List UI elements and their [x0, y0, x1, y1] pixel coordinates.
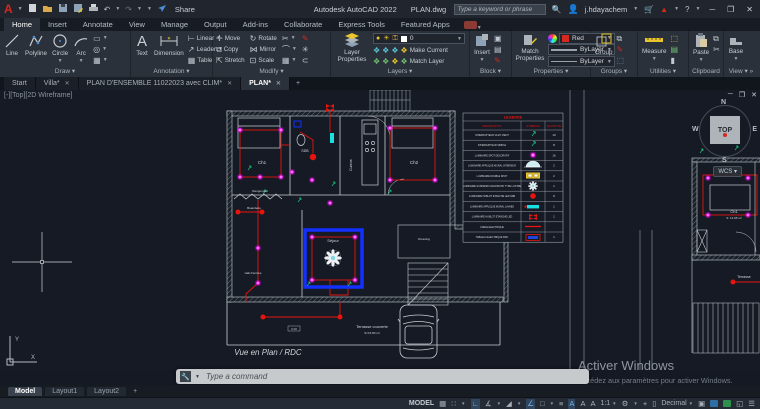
panel-clipboard: Paste▼ ⧉ ✂ Clipboard [689, 31, 724, 77]
arc-button[interactable]: Arc▼ [72, 33, 90, 64]
customize-plus-icon[interactable]: + [643, 399, 647, 409]
stairs [408, 263, 448, 305]
alert-caret-icon[interactable]: ▼ [674, 6, 679, 12]
svg-text:Ch1: Ch1 [730, 209, 738, 214]
plot-icon[interactable] [88, 3, 99, 15]
svg-text:CABLE ELECTRIQUE: CABLE ELECTRIQUE [480, 226, 504, 229]
panel-label-clipboard[interactable]: Clipboard [689, 67, 723, 77]
app-menu-caret-icon[interactable]: ▼ [18, 6, 23, 12]
polar-caret-icon[interactable]: ▼ [497, 401, 501, 406]
viewcube-top-face[interactable]: TOP [710, 116, 740, 144]
svg-text:SDB: SDB [301, 149, 309, 153]
lineweight-icon[interactable]: ≡ [559, 399, 563, 409]
close-button[interactable]: ✕ [743, 5, 756, 14]
isodraft-icon[interactable]: ◢ [506, 399, 512, 409]
close-tab-icon[interactable]: ✕ [65, 80, 70, 87]
rotate-button[interactable]: ↻Rotate [250, 33, 277, 43]
annotation-visibility-icon[interactable]: A [580, 399, 585, 409]
line-button[interactable]: Line [3, 33, 21, 57]
match-layer-label[interactable]: Match Layer [410, 58, 445, 65]
svg-text:SYMBOLE: SYMBOLE [526, 124, 540, 128]
trusted-dwg-icon[interactable] [723, 400, 731, 407]
base-button[interactable]: Base▼ [727, 33, 745, 62]
block-attributes-icon[interactable]: ✎ [494, 55, 502, 65]
search-input[interactable] [454, 4, 546, 15]
svg-text:LUMINAIRE HUBLOT ETANCHE LED: LUMINAIRE HUBLOT ETANCHE LED [472, 216, 513, 219]
offset-icon[interactable]: ⊂ [302, 55, 309, 65]
workspace-gear-icon[interactable]: ⚙ [622, 399, 629, 409]
customization-menu-icon[interactable]: ☰ [748, 399, 755, 409]
doc-title: PLAN.dwg [411, 5, 446, 14]
svg-text:S=15.80 m²: S=15.80 m² [364, 331, 380, 335]
ucs-icon: Y X [7, 336, 37, 365]
user-avatar-icon[interactable]: 👤 [568, 4, 579, 15]
svg-text:A: A [137, 33, 147, 49]
svg-text:10: 10 [552, 133, 556, 137]
isodraft-caret-icon[interactable]: ▼ [517, 401, 521, 406]
snap-icon[interactable]: ∷ [451, 399, 456, 409]
osnap-icon[interactable]: □ [540, 399, 545, 409]
help-caret-icon[interactable]: ▼ [696, 6, 701, 12]
crosshair-cursor [12, 232, 72, 292]
explode-icon[interactable]: ✳ [302, 44, 309, 54]
close-tab-icon[interactable]: ✕ [276, 80, 281, 87]
svg-text:INTERRUPTEUR SIMPLE: INTERRUPTEUR SIMPLE [478, 144, 507, 147]
username[interactable]: j.hdayachem [585, 5, 628, 14]
file-tab-plan-ensemble[interactable]: PLAN D'ENSEMBLE 11022023 avec CLIM*✕ [79, 77, 241, 90]
svg-text:LUMINAIRE HUBLOT ETANCHE LED S: LUMINAIRE HUBLOT ETANCHE LED SDB [469, 195, 516, 198]
doc-close-button[interactable]: ✕ [751, 91, 757, 99]
group-select-icon[interactable]: ⬚ [617, 55, 625, 65]
autodesk-alert-icon[interactable]: ▲ [660, 5, 668, 14]
svg-text:✶: ✶ [167, 36, 171, 42]
svg-text:Ch2: Ch2 [410, 160, 419, 165]
measure-button[interactable]: Measure▼ [641, 33, 668, 62]
panel-utilities: Measure▼ ⬚ ▤ ▮ Utilities ▾ [638, 31, 689, 77]
tab-add-ins[interactable]: Add-ins [235, 18, 276, 31]
panel-draw: Line Polyline Circle▼ Arc▼ ▭▼ ◎▼ ▦▼ Draw… [0, 31, 131, 77]
wcs-dropdown[interactable]: WCS ▾ [713, 166, 742, 177]
panel-view: Base▼ View ▾ » [724, 31, 758, 77]
id-point-icon[interactable]: ▮ [671, 55, 679, 65]
svg-text:LUMINAIRE SUSPENDU DECORATIF T: LUMINAIRE SUSPENDU DECORATIF TYPE LUSTRE [463, 185, 522, 188]
help-icon[interactable]: ? [685, 5, 689, 14]
status-bar: MODEL ▦ ∷▼ ∟ ∡▼ ◢▼ ∠ □▼ ≡ A A A 1:1 ▼ ⚙▼… [0, 397, 760, 409]
isolate-objects-icon[interactable]: ▯ [652, 399, 656, 409]
panel-layers: Layer Properties ● ☀ ⚿ 0▼ ❖❖❖❖Make Curre… [331, 31, 470, 77]
quick-calc-icon[interactable]: ▤ [671, 44, 679, 54]
panel-modify: ✛Move ⧉Copy ⇱Stretch ↻Rotate ⋈Mirror ⊡Sc… [213, 31, 331, 77]
match-properties-button[interactable]: Match Properties [515, 33, 545, 62]
panel-annotation: AText ✶Dimension ⊢Linear▼ ↗Leader▼ ▦Tabl… [131, 31, 213, 77]
layer-properties-button[interactable]: Layer Properties [334, 33, 370, 63]
ribbon: Line Polyline Circle▼ Arc▼ ▭▼ ◎▼ ▦▼ Draw… [0, 31, 760, 77]
boundary-lines [570, 90, 652, 370]
svg-text:S: 13.95 m²: S: 13.95 m² [726, 216, 742, 220]
osnap-caret-icon[interactable]: ▼ [550, 401, 554, 406]
panel-label-annotation[interactable]: Annotation ▾ [131, 67, 212, 77]
panel-label-draw[interactable]: Draw ▾ [0, 67, 130, 77]
undo-icon[interactable]: ↶ [104, 5, 111, 14]
svg-text:LUMINAIRE SPOT DECORATIF: LUMINAIRE SPOT DECORATIF [475, 154, 510, 157]
doc-minimize-button[interactable]: ─ [728, 91, 733, 99]
tab-manage[interactable]: Manage [153, 18, 196, 31]
redo-icon[interactable]: ↷ [125, 5, 132, 14]
minimize-button[interactable]: ─ [706, 5, 718, 14]
make-current-label[interactable]: Make Current [410, 47, 448, 54]
tab-output[interactable]: Output [196, 18, 235, 31]
panel-groups: Group ⧉ ✎ ⬚ Groups ▾ [591, 31, 638, 77]
hatch-tool-icon[interactable]: ▦▼ [93, 55, 108, 65]
annotation-autoscale-icon[interactable]: A [590, 399, 595, 409]
floor-plan-drawing: Ch1 SDB Cuisine Ch2 Rangement Buanderie … [0, 90, 760, 370]
text-button[interactable]: AText [134, 33, 150, 57]
panel-label-utilities[interactable]: Utilities ▾ [638, 67, 688, 77]
tab-annotate[interactable]: Annotate [75, 18, 121, 31]
layout2-tab[interactable]: Layout2 [87, 387, 126, 396]
graphics-performance-icon[interactable]: ▣ [698, 399, 705, 409]
autocad-window: A▼ ↶▼ ↷▼ ▼ Share Autodesk AutoCAD 2022PL… [0, 0, 760, 409]
viewport-controls-label[interactable]: [-][Top][2D Wireframe] [4, 92, 72, 99]
svg-text:TABLEAU ELECTRIQUE RDC: TABLEAU ELECTRIQUE RDC [476, 236, 509, 239]
mirror-button[interactable]: ⋈Mirror [250, 44, 277, 54]
svg-text:Séjour: Séjour [327, 238, 339, 243]
panel-label-layers[interactable]: Layers ▾ [331, 67, 469, 77]
copy-button[interactable]: ⧉Copy [216, 44, 245, 54]
tab-express-tools[interactable]: Express Tools [330, 18, 393, 31]
share-icon[interactable] [157, 4, 167, 15]
create-block-icon[interactable]: ▣ [494, 33, 502, 43]
legend-hublot-icon [530, 193, 536, 199]
car [398, 305, 439, 358]
open-folder-icon[interactable] [42, 3, 53, 15]
windows-activation-watermark: Activer Windows Accédez aux paramètres p… [578, 358, 758, 385]
svg-text:X: X [31, 355, 35, 361]
scale-button[interactable]: ⊡Scale [250, 55, 277, 65]
toolbar-customize-caret-icon[interactable]: ▼ [147, 6, 152, 12]
tab-featured-apps[interactable]: Featured Apps [393, 18, 458, 31]
drawing-canvas[interactable]: Ch1 SDB Cuisine Ch2 Rangement Buanderie … [0, 90, 760, 370]
panel-properties: Match Properties Red▼ ByLayer▼ ByLayer▼ … [512, 31, 591, 77]
layout1-tab[interactable]: Layout1 [45, 387, 84, 396]
legend-table: LEGENDE DESIGNATION SYMBOLE QUANTITE INT… [463, 113, 563, 242]
tab-collaborate[interactable]: Collaborate [276, 18, 330, 31]
save-as-icon[interactable] [73, 3, 83, 15]
svg-text:Rangement: Rangement [252, 189, 268, 193]
doc-restore-button[interactable]: ❐ [739, 91, 745, 99]
group-button[interactable]: Group [594, 33, 614, 56]
clean-screen-icon[interactable]: ◱ [736, 399, 743, 409]
svg-text:LUMINAIRE APPLIQUE MURAL INTER: LUMINAIRE APPLIQUE MURAL INTERIEUR [468, 165, 516, 168]
svg-text:Hall d'entrée: Hall d'entrée [245, 271, 262, 275]
new-file-icon[interactable] [28, 3, 37, 15]
layer-select[interactable]: ● ☀ ⚿ 0▼ [373, 33, 465, 44]
restore-button[interactable]: ❐ [724, 5, 737, 14]
command-input[interactable] [204, 371, 585, 382]
move-button[interactable]: ✛Move [216, 33, 245, 43]
ortho-icon[interactable]: ∟ [471, 399, 480, 409]
svg-text:LUMINAIRE DOUBLE SPOT: LUMINAIRE DOUBLE SPOT [477, 175, 508, 178]
cut-clip-icon[interactable]: ✂ [713, 44, 720, 54]
dynamic-input-icon[interactable]: A [568, 399, 575, 409]
viewcube-south[interactable]: S [722, 157, 727, 164]
svg-text:16: 16 [552, 153, 556, 157]
file-tab-villa[interactable]: Villa*✕ [36, 77, 79, 90]
tab-home[interactable]: Home [4, 18, 40, 31]
legend-double-spot-icon [526, 173, 540, 179]
panel-label-modify[interactable]: Modify ▾ [213, 67, 330, 77]
toilet [297, 135, 305, 146]
color-wheel-icon [548, 34, 557, 43]
quick-access-toolbar: A▼ ↶▼ ↷▼ ▼ Share [4, 3, 195, 15]
viewcube-west[interactable]: W [692, 126, 699, 133]
share-label[interactable]: Share [175, 5, 195, 14]
autotrack-icon[interactable]: ∠ [526, 399, 535, 409]
svg-text:QUANTITE: QUANTITE [547, 124, 561, 128]
hardware-acceleration-icon[interactable] [710, 400, 718, 407]
panel-label-groups[interactable]: Groups ▾ [591, 67, 637, 77]
panel-label-view[interactable]: View ▾ » [724, 67, 758, 77]
group-edit-icon[interactable]: ✎ [617, 44, 625, 54]
annotation-scale-select[interactable]: 1:1 ▼ [600, 400, 616, 407]
lavabo-applique [330, 133, 334, 143]
tableau-electrique [294, 121, 301, 127]
file-tab-plan[interactable]: PLAN*✕ [241, 77, 290, 90]
file-tab-bar: Start Villa*✕ PLAN D'ENSEMBLE 11022023 a… [0, 77, 760, 90]
viewcube-pin-icon [723, 133, 727, 137]
dimension-button[interactable]: ✶Dimension [153, 33, 185, 57]
edit-block-icon[interactable]: ▤ [494, 44, 502, 54]
layer-on-bulb-icon: ● [376, 35, 380, 43]
panel-label-properties[interactable]: Properties ▾ [512, 67, 590, 77]
viewcube-east[interactable]: E [752, 126, 757, 133]
panel-block: Insert▼ ▣ ▤ ✎ Block ▾ [470, 31, 512, 77]
autocad-logo-icon[interactable]: A [4, 3, 13, 15]
layer-make-current-icon[interactable]: ❖ [373, 46, 380, 55]
svg-text:Terrasse couverte: Terrasse couverte [356, 324, 389, 329]
title-bar: A▼ ↶▼ ↷▼ ▼ Share Autodesk AutoCAD 2022PL… [0, 0, 760, 18]
sdb-hublot [310, 154, 316, 160]
svg-text:Y: Y [15, 337, 19, 343]
app-title: Autodesk AutoCAD 2022 [314, 5, 397, 14]
svg-text:LEGENDE: LEGENDE [504, 116, 523, 120]
viewcube[interactable]: N S W E TOP [695, 101, 755, 161]
stretch-button[interactable]: ⇱Stretch [216, 55, 245, 65]
svg-text:INTERRUPTEUR VA ET VIENT: INTERRUPTEUR VA ET VIENT [475, 134, 509, 137]
command-line-bar: 🔧 ▼ [176, 369, 589, 384]
rectangle-tool-icon[interactable]: ▭▼ [93, 33, 108, 43]
redo-caret-icon[interactable]: ▼ [137, 6, 142, 12]
lustre-fan [321, 246, 346, 271]
command-recent-caret-icon[interactable]: ▼ [195, 374, 200, 380]
workspace-caret-icon[interactable]: ▼ [633, 401, 637, 406]
model-space-button[interactable]: MODEL [409, 400, 434, 407]
svg-text:Vue en Plan / RDC: Vue en Plan / RDC [234, 348, 302, 357]
copy-clip-icon[interactable]: ⧉ [713, 33, 720, 43]
model-tab[interactable]: Model [8, 387, 42, 396]
layer-lock-icon: ⚿ [393, 35, 398, 43]
save-icon[interactable] [58, 3, 68, 15]
undo-caret-icon[interactable]: ▼ [115, 6, 120, 12]
tab-insert[interactable]: Insert [40, 18, 75, 31]
ribbon-extra-button[interactable] [464, 21, 477, 29]
svg-text:DESIGNATION: DESIGNATION [482, 124, 501, 128]
layer-match-icon[interactable]: ❖ [373, 57, 380, 66]
polar-tracking-icon[interactable]: ∡ [485, 399, 492, 409]
grid-icon[interactable]: ▦ [439, 399, 446, 409]
user-caret-icon[interactable]: ▼ [633, 6, 638, 12]
viewcube-north[interactable]: N [721, 99, 726, 106]
close-tab-icon[interactable]: ✕ [227, 80, 232, 87]
layer-color-swatch [401, 36, 407, 42]
layer-freeze-sun-icon: ☀ [383, 35, 389, 43]
tab-view[interactable]: View [121, 18, 153, 31]
app-store-icon[interactable]: 🛒 [644, 5, 654, 14]
new-tab-button[interactable]: + [290, 77, 306, 90]
legend-spot-icon [530, 152, 537, 159]
pergola [370, 90, 410, 111]
snap-caret-icon[interactable]: ▼ [461, 401, 465, 406]
svg-text:Dressing: Dressing [418, 237, 430, 241]
ellipse-tool-icon[interactable]: ◎▼ [93, 44, 108, 54]
panel-label-block[interactable]: Block ▾ [470, 67, 511, 77]
red-color-swatch [562, 35, 569, 42]
paste-button[interactable]: Paste▼ [692, 33, 710, 63]
ribbon-tab-row: Home Insert Annotate View Manage Output … [0, 18, 760, 31]
insert-block-button[interactable]: Insert▼ [473, 33, 491, 63]
circle-button[interactable]: Circle▼ [51, 33, 69, 64]
trim-icon[interactable]: ✂▼ [282, 33, 297, 43]
search-icon[interactable]: 🔍 [552, 5, 562, 14]
svg-text:Buanderie: Buanderie [247, 206, 261, 210]
quick-select-icon[interactable]: ⬚ [671, 33, 679, 43]
new-layout-button[interactable]: + [129, 388, 141, 395]
svg-text:Ch1: Ch1 [258, 160, 267, 165]
svg-text:Cuisine: Cuisine [349, 159, 353, 171]
array-icon[interactable]: ▦▼ [282, 55, 297, 65]
file-tab-start[interactable]: Start [4, 77, 36, 90]
ungroup-icon[interactable]: ⧉ [617, 33, 625, 43]
svg-text:Terrasse: Terrasse [737, 275, 750, 279]
right-plan [692, 158, 760, 353]
dim-text: 0.00 [291, 327, 297, 331]
layout-tab-bar: Model Layout1 Layout2 + [0, 385, 760, 397]
svg-text:LUMINAIRE APPLIQUE MURAL LAVAB: LUMINAIRE APPLIQUE MURAL LAVABO [470, 205, 514, 208]
fillet-icon[interactable]: ⌒▼ [282, 44, 297, 54]
units-select[interactable]: Decimal ▼ [661, 400, 693, 407]
polyline-button[interactable]: Polyline [24, 33, 48, 57]
erase-icon[interactable]: ✎ [302, 33, 309, 43]
command-customize-icon[interactable]: 🔧 [180, 371, 191, 382]
